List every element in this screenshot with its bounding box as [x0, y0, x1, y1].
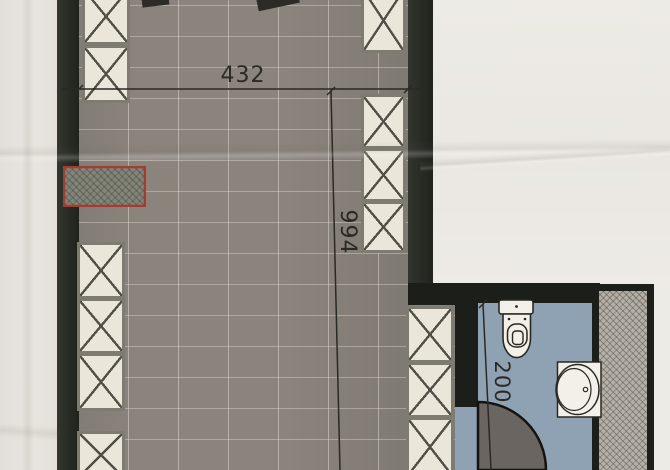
dimension-label-bath: 200: [472, 351, 532, 413]
toilet-icon: [499, 300, 533, 358]
dimension-label-height: 994: [318, 202, 378, 262]
dimension-label-width: 432: [200, 62, 286, 88]
floor-plan-photo: 432 994 200: [0, 0, 670, 470]
sink-icon: [556, 362, 601, 417]
paper-crease: [22, 0, 34, 470]
